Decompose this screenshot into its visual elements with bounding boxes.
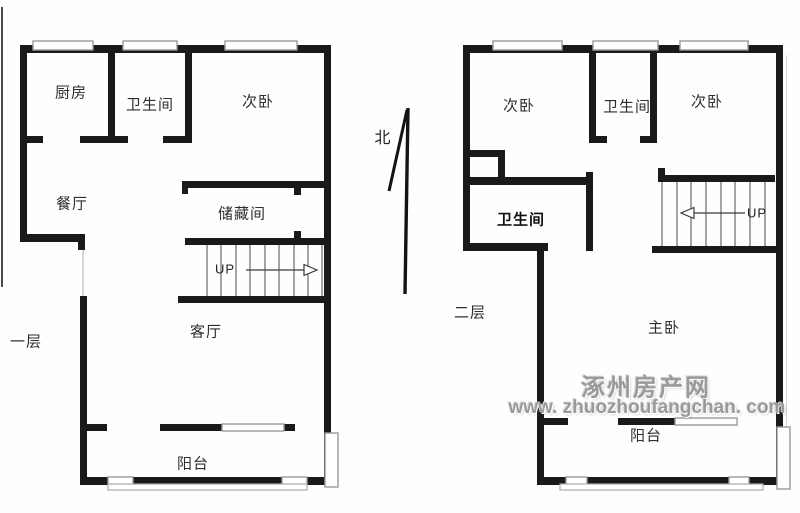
stairs-up-label-f2: UP (747, 206, 767, 221)
north-label: 北 (374, 124, 391, 148)
north-arrow-icon (389, 108, 408, 294)
watermark-site-url: www. zhuozhoufangchan. com (509, 397, 786, 419)
floorplan-image: 厨房 卫生间 次卧 餐厅 储藏间 客厅 阳台 UP 一层 北 次卧 卫生间 次卧… (0, 0, 800, 513)
room-label-bathroom-top-f2: 卫生间 (603, 96, 651, 117)
room-label-bedroom-right-f2: 次卧 (691, 91, 723, 112)
room-label-storage: 储藏间 (218, 203, 266, 224)
room-label-bedroom-left-f2: 次卧 (503, 95, 535, 116)
floorplan-svg (0, 0, 800, 513)
room-label-kitchen: 厨房 (55, 82, 87, 103)
room-label-bathroom-f1: 卫生间 (126, 94, 174, 115)
room-label-living: 客厅 (190, 321, 222, 342)
floor1-walls (20, 45, 331, 485)
room-label-balcony-f2: 阳台 (630, 425, 662, 446)
stairs-up-label-f1: UP (215, 262, 235, 277)
room-label-master: 主卧 (648, 317, 680, 338)
floor1-up-arrow-icon (246, 265, 317, 276)
room-label-bathroom-main-f2: 卫生间 (497, 209, 545, 230)
room-label-bedroom-f1: 次卧 (242, 91, 274, 112)
floor1-title: 一层 (10, 331, 42, 352)
room-label-balcony-f1: 阳台 (177, 453, 209, 474)
room-label-dining: 餐厅 (56, 193, 88, 214)
floor2-title: 二层 (454, 302, 486, 323)
